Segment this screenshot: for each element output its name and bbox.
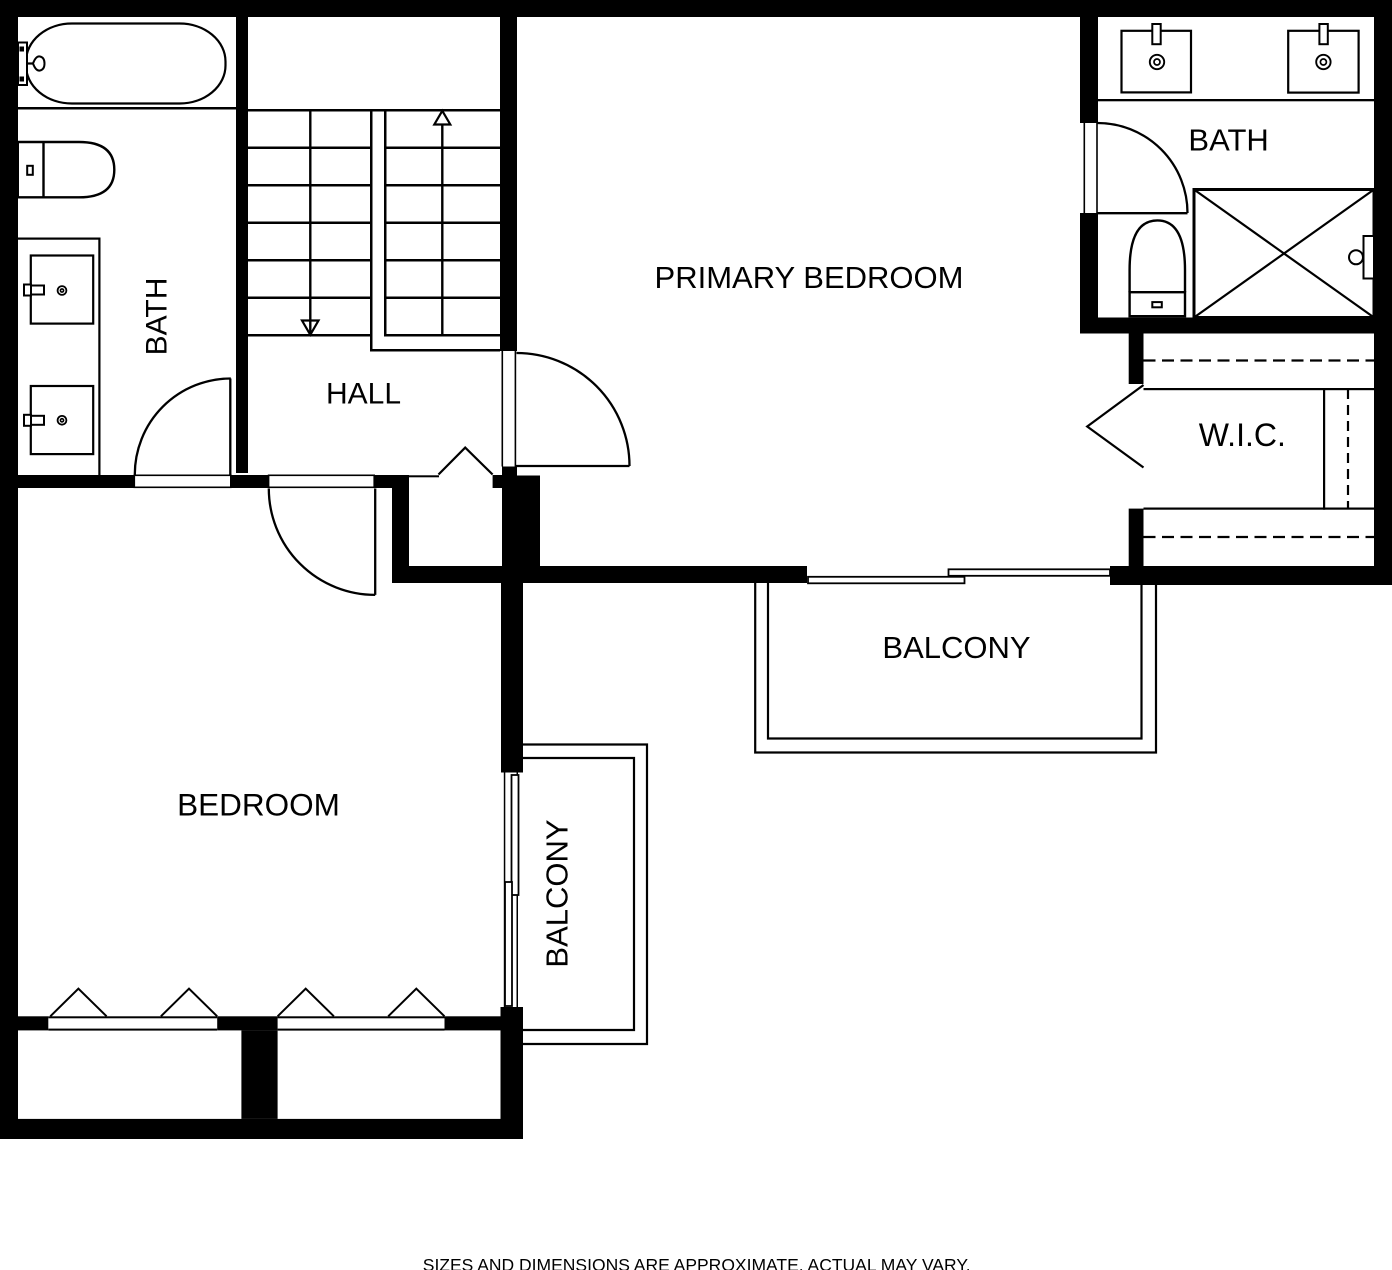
svg-text:BALCONY: BALCONY [882, 630, 1030, 665]
svg-text:BATH: BATH [1188, 123, 1268, 158]
svg-text:HALL: HALL [326, 378, 401, 411]
svg-text:BATH: BATH [140, 278, 173, 356]
svg-text:W.I.C.: W.I.C. [1199, 417, 1286, 453]
svg-text:BEDROOM: BEDROOM [177, 786, 340, 822]
svg-text:SIZES AND DIMENSIONS ARE APPRO: SIZES AND DIMENSIONS ARE APPROXIMATE, AC… [423, 1255, 971, 1270]
svg-text:BALCONY: BALCONY [540, 819, 575, 967]
svg-text:PRIMARY BEDROOM: PRIMARY BEDROOM [655, 260, 964, 295]
